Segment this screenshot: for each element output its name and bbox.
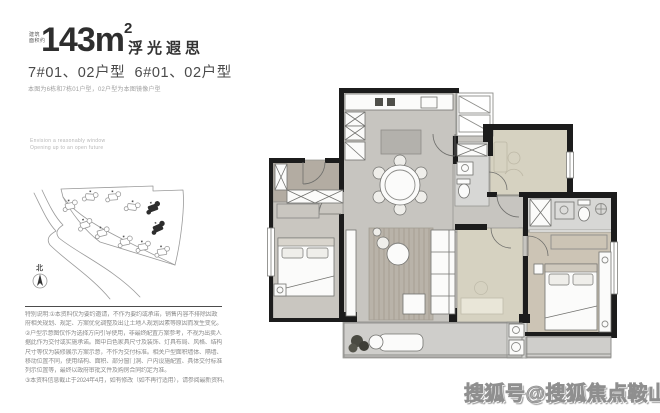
bath1-sink [457, 162, 473, 175]
window-master-bedroom [611, 242, 618, 294]
disclaimer-line: 尺寸等仅为装修展示方案示意，不作为交付标准。相关户型面积墙体、隔墙、 [25, 349, 224, 358]
building-footprint [154, 244, 171, 257]
bath2-closet [530, 199, 551, 226]
window-bedroom-left [268, 228, 275, 276]
stove-burner [387, 98, 395, 106]
cabinet-master-right [599, 252, 611, 332]
area-superscript: 2 [124, 20, 132, 37]
stove-burner [375, 98, 383, 106]
kitchen-island [381, 130, 421, 154]
kitchen-cabinet-x [345, 112, 365, 126]
building-footprint [61, 198, 78, 212]
refrigerator [345, 142, 365, 160]
disclaimer-line: 特别说明:①本资料仅为要约邀请，不作为要约或承诺，销售内容不排除因政 [25, 311, 224, 320]
floor-plan [253, 78, 653, 396]
divider-line [25, 306, 222, 307]
building-footprint [124, 200, 141, 213]
coffee-table [403, 294, 425, 314]
disclaimer-line: 移动位置不同，使用结构、面积、部分窗门洞、户内设施配置、具体交付标准 [25, 358, 224, 367]
north-label: 北 [36, 263, 43, 272]
tagline-line1: Envision a reasonably window [30, 138, 105, 145]
mirror-note: 本图为6栋和7栋01户型，02户型为本图镜像户型 [28, 84, 161, 93]
disclaimer-line: 列示位置等，最终以政府审批文件及购房合同约定为准。 [25, 367, 224, 376]
washing-machine [509, 340, 524, 355]
floor-lamp [373, 228, 381, 236]
nightstand-master [534, 264, 543, 274]
unit-subtitle: 7#01、02户型 6#01、02户型 [28, 61, 232, 82]
kitchen-cabinet-x [345, 126, 365, 140]
english-tagline: Envision a reasonably window Opening up … [30, 138, 105, 152]
building-footprint [116, 234, 133, 248]
entry-cabinet-tall [275, 164, 287, 190]
bath2-sink [555, 202, 574, 219]
plan-name: 浮光遐思 [128, 37, 204, 58]
nightstand-left [274, 284, 286, 296]
building-footprint [105, 190, 121, 202]
dining-table [380, 165, 420, 205]
window-bedroom-top-right [567, 152, 574, 178]
area-value: 143m2 [41, 20, 132, 60]
tagline-line2: Opening up to an open future [30, 145, 105, 152]
bath2-shower [596, 204, 607, 215]
tv-console [346, 230, 356, 316]
north-compass: 北 [33, 263, 47, 288]
disclaimer-line: ③本资料信息截止于2024年4月，如有修改（如不再行适用），请参阅最新资料。 [25, 377, 224, 386]
balcony-master-floor [525, 336, 611, 358]
sofa [431, 230, 455, 314]
lounge-chair-head [369, 335, 383, 349]
floorplan-ad-page: 建筑 面积约 143m2 浮光遐思 7#01、02户型 6#01、02户型 本图… [0, 0, 660, 413]
bed-master [545, 264, 597, 330]
room-bedroom-top-right-floor [490, 128, 570, 196]
shoe-cabinet [287, 190, 343, 203]
watermark: 搜狐号@搜狐焦点鞍山站 [464, 377, 660, 406]
building-footprint [76, 216, 94, 231]
disclaimer-line: 府相关规划、规定、方案优化调整及出让土地人规划因素等原因而发生变化。 [25, 320, 224, 329]
north-needle [37, 274, 43, 286]
lounge-chair [379, 334, 423, 351]
building-highlighted-6 [149, 219, 168, 235]
disclaimer-line: ②户型示意图仅作为选择方向引导使用，非最终配置方案参考，不视为出卖人 [25, 330, 224, 339]
building-highlighted-7 [144, 199, 162, 215]
bath1-closet [457, 144, 487, 156]
utility-sink [509, 324, 524, 337]
building-footprint [82, 190, 98, 202]
disclaimer-line: 据此作为交付或实施承诺。图中白色家具尺寸及装饰、灯具布局、风格、结构 [25, 339, 224, 348]
ottoman [377, 237, 389, 249]
site-plan-sketch: 北 [22, 165, 227, 300]
legal-disclaimer: 特别说明:①本资料仅为要约邀请，不作为要约或承诺，销售内容不排除因政 府相关规划… [25, 311, 224, 386]
building-footprint [134, 239, 151, 253]
bath2-toilet [578, 200, 590, 221]
